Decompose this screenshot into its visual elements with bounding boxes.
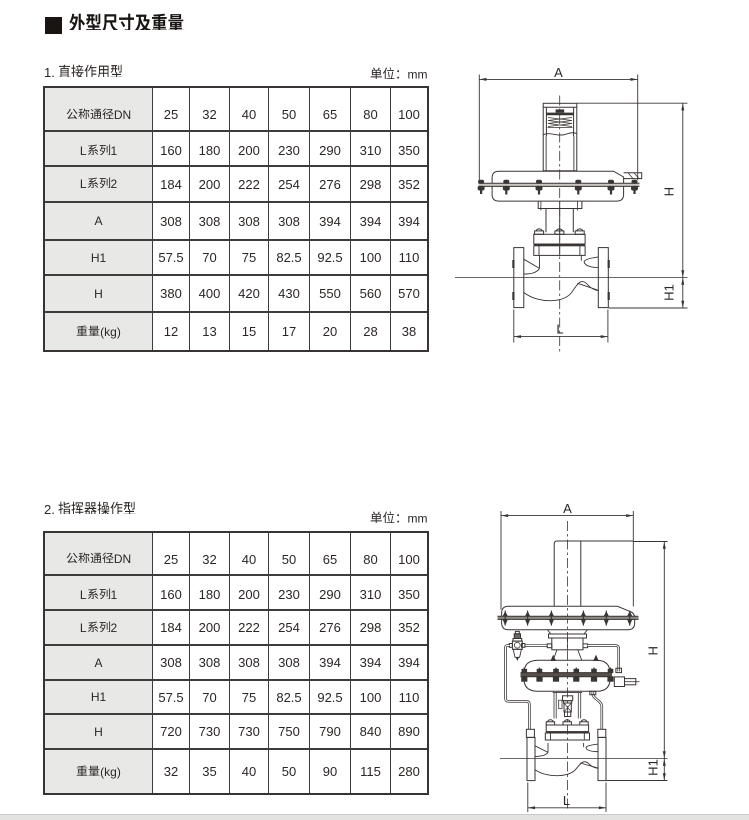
- svg-text:H1: H1: [646, 759, 661, 776]
- svg-text:A: A: [563, 501, 572, 516]
- svg-text:A: A: [554, 65, 563, 80]
- svg-text:H1: H1: [662, 284, 677, 301]
- svg-text:L: L: [563, 793, 570, 808]
- svg-text:H: H: [662, 187, 677, 196]
- svg-text:H: H: [646, 646, 661, 655]
- svg-text:L: L: [556, 322, 563, 337]
